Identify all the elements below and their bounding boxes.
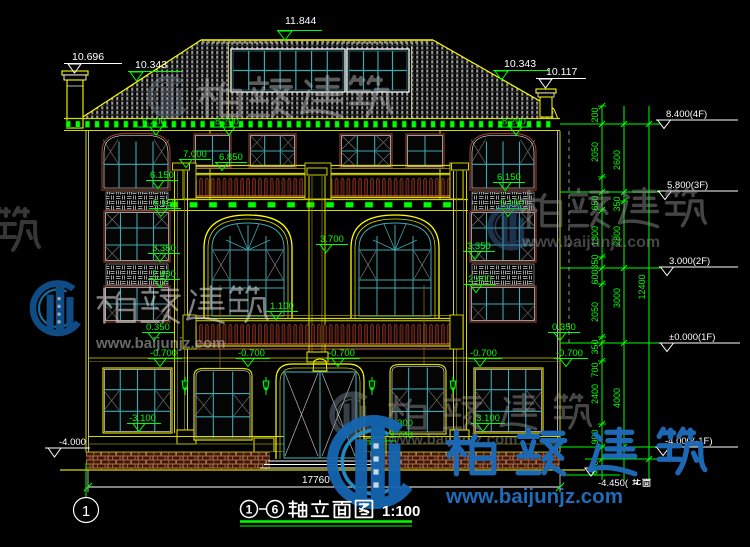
svg-text:-0.700: -0.700 (238, 348, 265, 359)
svg-text:3.350: 3.350 (467, 241, 491, 252)
svg-text:8.200: 8.200 (215, 117, 239, 128)
svg-text:3000: 3000 (612, 288, 622, 308)
svg-text:www.baijunjz.com: www.baijunjz.com (445, 485, 623, 508)
svg-text:3.000(2F): 3.000(2F) (669, 256, 710, 267)
svg-text:17760: 17760 (302, 475, 330, 486)
svg-text:350: 350 (590, 339, 600, 354)
svg-text:7.000: 7.000 (183, 149, 207, 160)
svg-text:350: 350 (612, 196, 622, 211)
svg-text:0.350: 0.350 (552, 322, 576, 333)
svg-text:1: 1 (246, 503, 253, 517)
svg-text:350: 350 (590, 254, 600, 269)
svg-text:10.343: 10.343 (504, 58, 536, 70)
svg-text:5.150: 5.150 (153, 198, 177, 209)
svg-text:-0.700: -0.700 (556, 348, 583, 359)
svg-text:600: 600 (590, 269, 600, 284)
svg-text:-0.700: -0.700 (328, 348, 355, 359)
svg-text:www.baijunjz.com: www.baijunjz.com (387, 431, 517, 448)
svg-text:8.200: 8.200 (502, 117, 526, 128)
svg-text:1: 1 (82, 503, 90, 520)
svg-text:-4.000: -4.000 (59, 437, 86, 448)
svg-text:8.200: 8.200 (142, 117, 166, 128)
svg-text:4000: 4000 (612, 388, 622, 408)
svg-text:2.400: 2.400 (468, 274, 492, 285)
svg-text:2.400: 2.400 (152, 269, 176, 280)
svg-text:200: 200 (590, 107, 600, 122)
svg-text:3.350: 3.350 (152, 243, 176, 254)
svg-text:10.117: 10.117 (546, 66, 577, 78)
svg-text:11.844: 11.844 (285, 15, 316, 27)
svg-text:2400: 2400 (590, 384, 600, 404)
svg-text:2050: 2050 (590, 142, 600, 162)
svg-text:6.850: 6.850 (219, 152, 243, 163)
svg-text:10.343: 10.343 (135, 59, 167, 71)
svg-text:-0.700: -0.700 (470, 348, 497, 359)
svg-text:6: 6 (272, 503, 279, 517)
svg-text:2600: 2600 (612, 150, 622, 170)
svg-text:8.400(4F): 8.400(4F) (666, 109, 707, 120)
svg-text:700: 700 (590, 362, 600, 377)
svg-text:www.baijunjz.com: www.baijunjz.com (521, 234, 660, 251)
svg-text:10.696: 10.696 (72, 51, 104, 63)
svg-text:12400: 12400 (637, 274, 647, 299)
svg-text:1.100: 1.100 (270, 301, 294, 312)
svg-text:-3.100: -3.100 (129, 413, 156, 424)
svg-text:www.baijunjz.com: www.baijunjz.com (95, 335, 225, 352)
svg-text:6.150: 6.150 (497, 172, 521, 183)
svg-text:2050: 2050 (590, 302, 600, 322)
svg-text:3.700: 3.700 (320, 234, 344, 245)
svg-text:1:100: 1:100 (382, 503, 420, 520)
svg-text:6.150: 6.150 (150, 170, 174, 181)
svg-text:±0.000(1F): ±0.000(1F) (669, 332, 715, 343)
svg-text:0.350: 0.350 (146, 322, 170, 333)
